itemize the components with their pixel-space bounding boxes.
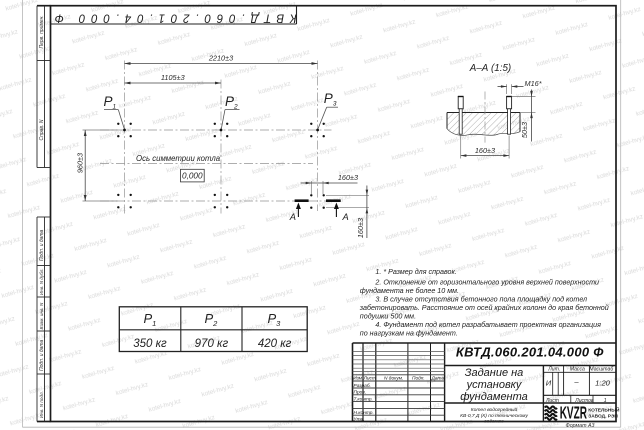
- svg-text:1105±3: 1105±3: [161, 73, 185, 82]
- svg-text:KVZR: KVZR: [560, 402, 588, 422]
- svg-text:Подп.: Подп.: [412, 376, 425, 382]
- svg-text:Ось симметрии котла: Ось симметрии котла: [136, 154, 221, 163]
- svg-text:А: А: [342, 212, 349, 222]
- svg-text:160±3: 160±3: [338, 173, 358, 182]
- svg-text:Изм.: Изм.: [353, 376, 363, 382]
- svg-text:N докум.: N докум.: [384, 376, 403, 382]
- svg-text:Утв.: Утв.: [354, 417, 365, 423]
- svg-text:ЗАВОД, РЭП: ЗАВОД, РЭП: [588, 414, 618, 420]
- svg-text:КВТД.060.201.04.000 Ф: КВТД.060.201.04.000 Ф: [456, 345, 604, 360]
- svg-text:Разраб.: Разраб.: [354, 383, 371, 389]
- svg-text:Котел водогрейный: Котел водогрейный: [471, 406, 518, 413]
- svg-text:Лит.: Лит.: [547, 367, 560, 373]
- svg-text:забетонировать. Расстояние от: забетонировать. Расстояние от осей крайн…: [359, 304, 609, 312]
- svg-text:КВ-0,7 Д (К) по техническому: КВ-0,7 Д (К) по техническому: [460, 413, 528, 419]
- svg-text:А: А: [289, 212, 296, 222]
- svg-text:Н.контр.: Н.контр.: [354, 410, 374, 416]
- svg-text:А–А (1:5): А–А (1:5): [469, 63, 511, 74]
- svg-text:1:20: 1:20: [595, 379, 611, 388]
- svg-text:фундамента: фундамента: [460, 391, 528, 403]
- svg-text:0,000: 0,000: [182, 172, 203, 181]
- svg-text:Перв. примен.: Перв. примен.: [39, 15, 45, 48]
- svg-text:Инв. N подл.: Инв. N подл.: [39, 391, 44, 418]
- svg-text:1: 1: [604, 398, 607, 404]
- svg-text:2210±3: 2210±3: [208, 54, 233, 63]
- svg-text:160±3: 160±3: [475, 146, 495, 155]
- svg-text:420 кг: 420 кг: [258, 338, 292, 350]
- svg-text:Пров.: Пров.: [354, 390, 367, 396]
- svg-text:160±3: 160±3: [356, 218, 365, 238]
- svg-text:подушки 500 мм.: подушки 500 мм.: [360, 312, 416, 320]
- svg-text:заданию: заданию: [483, 418, 504, 424]
- svg-text:960±3: 960±3: [76, 153, 85, 173]
- svg-text:по нагрузкам на фундамент.: по нагрузкам на фундамент.: [360, 329, 458, 337]
- svg-text:Масштаб: Масштаб: [589, 367, 614, 373]
- svg-text:Подп. и дата: Подп. и дата: [39, 339, 45, 371]
- svg-text:1. * Размер для справок.: 1. * Размер для справок.: [375, 268, 456, 276]
- svg-text:Подп. и дата: Подп. и дата: [39, 229, 45, 261]
- svg-text:фундамента не более 10 мм.: фундамента не более 10 мм.: [360, 287, 459, 295]
- svg-text:50±3: 50±3: [520, 122, 529, 138]
- svg-text:Лист: Лист: [363, 376, 376, 382]
- svg-text:Взам. инв. N: Взам. инв. N: [39, 302, 44, 329]
- svg-text:Справ. N: Справ. N: [39, 119, 45, 140]
- svg-text:Лист: Лист: [545, 398, 559, 404]
- svg-text:Задание на: Задание на: [465, 367, 524, 379]
- svg-text:Инв. N дубл.: Инв. N дубл.: [39, 268, 44, 295]
- svg-text:И: И: [546, 379, 552, 388]
- svg-text:Дата: Дата: [431, 376, 445, 382]
- svg-text:–: –: [573, 378, 579, 387]
- svg-text:Масса: Масса: [570, 367, 585, 373]
- svg-text:3. В случае отсутствия бетонно: 3. В случае отсутствия бетонного пола пл…: [375, 295, 587, 303]
- svg-text:Т.контр.: Т.контр.: [354, 396, 373, 402]
- svg-text:2. Отклонение от горизонтально: 2. Отклонение от горизонтального уровня …: [374, 278, 599, 286]
- svg-text:установку: установку: [466, 379, 523, 391]
- svg-text:4. Фундамент под котел разраба: 4. Фундамент под котел разрабатывает про…: [375, 321, 601, 329]
- svg-text:970 кг: 970 кг: [195, 338, 229, 350]
- svg-text:М16*: М16*: [525, 79, 543, 88]
- svg-text:350 кг: 350 кг: [133, 338, 167, 350]
- svg-text:Формат А3: Формат А3: [566, 423, 595, 429]
- svg-text:КВТД.060.201.04.000 Ф: КВТД.060.201.04.000 Ф: [49, 11, 297, 23]
